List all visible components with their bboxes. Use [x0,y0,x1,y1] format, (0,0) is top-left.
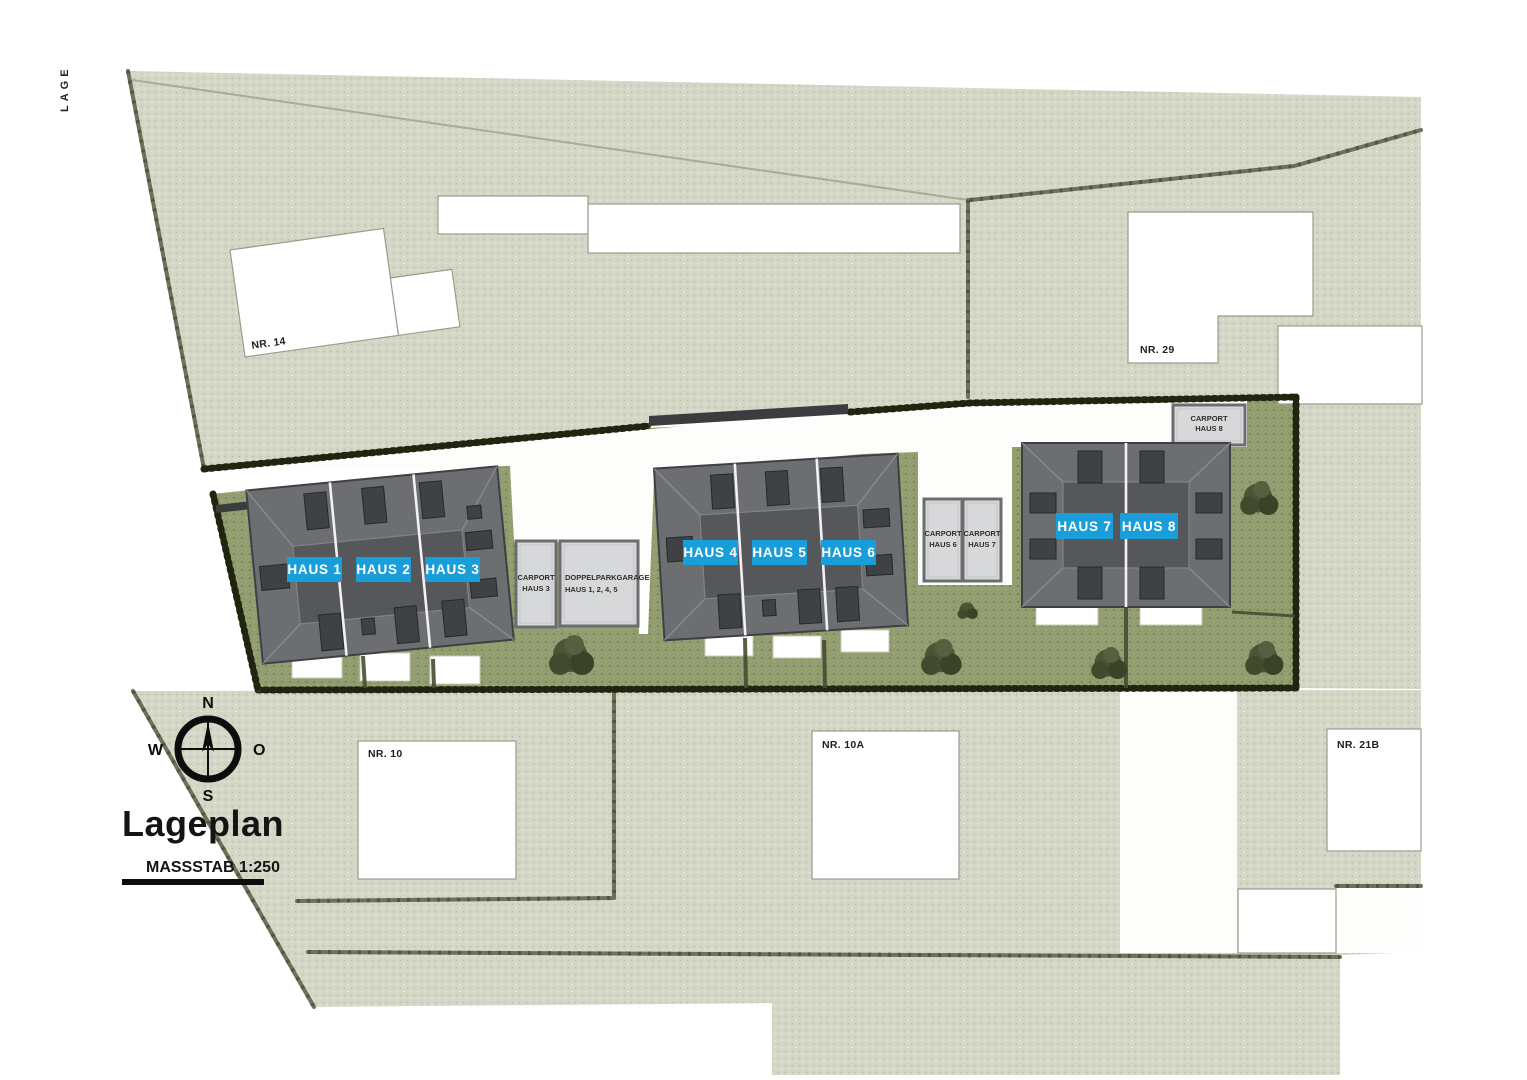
haus-4-label[interactable]: HAUS 4 [683,545,737,560]
badge-haus-5[interactable]: HAUS 5 [752,540,807,565]
page-title: Lageplan [122,803,284,844]
badge-haus-3[interactable]: HAUS 3 [425,557,480,582]
carport3-label-1: CARPORT [517,573,555,582]
haus-8-label[interactable]: HAUS 8 [1122,519,1176,534]
south-driveway [1120,690,1237,953]
building-north-1 [438,196,588,234]
building-nr10a [812,731,959,879]
haus-6-label[interactable]: HAUS 6 [821,545,875,560]
haus-5-label[interactable]: HAUS 5 [752,545,806,560]
building-north-2 [588,204,960,253]
garage-label-2: HAUS 1, 2, 4, 5 [565,585,618,594]
label-nr21b: NR. 21B [1337,739,1379,751]
carport-haus-7: CARPORT HAUS 7 [963,499,1001,581]
scale-label: MASSSTAB 1:250 [146,859,280,876]
haus-3-label[interactable]: HAUS 3 [425,562,479,577]
sheet-side-label: LAGE [59,65,71,112]
doppelparkgarage: DOPPELPARKGARAGE HAUS 1, 2, 4, 5 [560,541,649,626]
compass-west-label: W [148,742,164,759]
carport-haus-6: CARPORT HAUS 6 [924,499,962,581]
carport6-label-2: HAUS 6 [929,540,957,549]
label-nr10a: NR. 10A [822,739,864,751]
white-parcel-corner [1336,887,1422,953]
building-east-notch [1278,326,1422,404]
carport6-label-1: CARPORT [924,529,962,538]
badge-haus-1[interactable]: HAUS 1 [287,557,342,582]
building-south-small [1238,889,1336,953]
label-nr29: NR. 29 [1140,344,1174,356]
building-nr10 [358,741,516,879]
badge-haus-6[interactable]: HAUS 6 [821,540,876,565]
carport-haus-8: CARPORT HAUS 8 [1173,405,1245,445]
compass-north-label: N [202,695,214,712]
badge-haus-8[interactable]: HAUS 8 [1120,513,1178,539]
compass-east-label: O [253,742,265,759]
site-plan-page: NR. 14 NR. 29 NR. 10 NR. 10A NR. 21B [0,0,1527,1080]
badge-haus-4[interactable]: HAUS 4 [683,540,738,565]
haus-1-label[interactable]: HAUS 1 [287,562,341,577]
scale-bar [122,879,264,885]
carport8-label-2: HAUS 8 [1195,424,1223,433]
haus-2-label[interactable]: HAUS 2 [356,562,410,577]
label-nr10: NR. 10 [368,748,402,760]
carport3-label-2: HAUS 3 [522,584,550,593]
badge-haus-2[interactable]: HAUS 2 [356,557,411,582]
carport7-label-1: CARPORT [963,529,1001,538]
site-plan-svg: NR. 14 NR. 29 NR. 10 NR. 10A NR. 21B [0,0,1527,1080]
badge-haus-7[interactable]: HAUS 7 [1056,513,1113,539]
carport-haus-3: CARPORT HAUS 3 [516,541,556,627]
carport7-label-2: HAUS 7 [968,540,996,549]
carport8-label-1: CARPORT [1190,414,1228,423]
haus-7-label[interactable]: HAUS 7 [1057,519,1111,534]
garage-label-1: DOPPELPARKGARAGE [565,573,649,582]
